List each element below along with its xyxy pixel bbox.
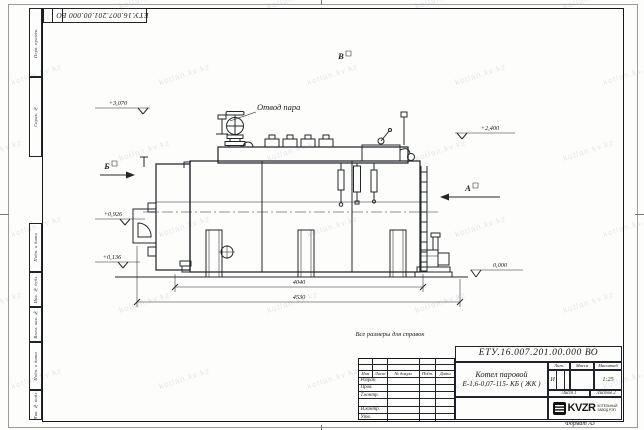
view-label-v: В bbox=[337, 51, 351, 61]
title-block: Изм Лист № докум. Подп. Дата Разраб. Про… bbox=[358, 346, 622, 420]
kvzr-logo-icon bbox=[553, 402, 566, 415]
scale-value: 1:25 bbox=[594, 370, 622, 390]
dim-4040-value: 4040 bbox=[293, 279, 306, 286]
sheet-number: Лист 1 bbox=[548, 390, 590, 397]
header-lit: Лит. bbox=[548, 362, 570, 370]
elevation-mark-2400: +2,400 bbox=[455, 125, 515, 139]
empty-cell bbox=[455, 397, 548, 420]
lit-value-cell: И bbox=[548, 370, 570, 390]
row-tkontr: Т.контр. bbox=[359, 392, 388, 398]
format-label: Формат А3 bbox=[540, 421, 620, 427]
manhole bbox=[219, 245, 235, 259]
header-masshtab: Масштаб bbox=[594, 362, 622, 370]
svg-text:Отвод пара: Отвод пара bbox=[257, 102, 300, 112]
front-fittings bbox=[140, 157, 191, 272]
product-name-line1: Котел паровой bbox=[475, 371, 527, 380]
svg-text:Б: Б bbox=[103, 161, 110, 171]
col-data: Дата bbox=[436, 371, 454, 377]
product-name: Котел паровой Е-1,6-0,07-115- КБ ( ЖК ) bbox=[455, 362, 548, 397]
title-block-signatures: Изм Лист № докум. Подп. Дата Разраб. Про… bbox=[358, 358, 455, 420]
drawing-sheet: kotlan.kv.kzkotlan.kv.kzkotlan.kv.kzkotl… bbox=[0, 0, 644, 430]
control-box bbox=[362, 112, 415, 161]
col-doc: № докум. bbox=[388, 371, 419, 377]
organization-cell: KVZR КОТЕЛЬНЫЙ ЗАВОД РЭП bbox=[548, 397, 622, 420]
row-utv: Утв. bbox=[359, 414, 388, 421]
col-podp: Подп. bbox=[420, 371, 437, 377]
sheets-total: Листов 2 bbox=[590, 390, 622, 397]
col-list: Лист bbox=[373, 371, 389, 377]
lit-value: И bbox=[549, 377, 556, 383]
burner bbox=[133, 209, 156, 243]
top-hatches bbox=[265, 135, 333, 147]
svg-text:+0,926: +0,926 bbox=[104, 211, 123, 218]
product-name-line2: Е-1,6-0,07-115- КБ ( ЖК ) bbox=[462, 381, 540, 389]
reference-note: Все размеры для справок bbox=[330, 331, 450, 338]
org-name-lines: КОТЕЛЬНЫЙ ЗАВОД РЭП bbox=[597, 405, 617, 413]
svg-text:+2,400: +2,400 bbox=[481, 125, 500, 132]
svg-text:+0,136: +0,136 bbox=[103, 254, 122, 261]
view-arrow-b: Б bbox=[100, 161, 135, 179]
row-razrab: Разраб. bbox=[359, 378, 388, 384]
support-legs bbox=[206, 230, 406, 277]
svg-text:+3,070: +3,070 bbox=[109, 100, 128, 107]
water-level-gauges bbox=[338, 163, 377, 206]
view-arrow-a: А bbox=[440, 183, 500, 201]
svg-text:А: А bbox=[464, 183, 471, 193]
svg-text:В: В bbox=[337, 51, 344, 61]
elevation-mark-3070: +3,070 bbox=[95, 100, 150, 114]
row-nkontr: Н.контр. bbox=[359, 407, 388, 413]
safety-valve-assembly bbox=[216, 112, 253, 148]
massa-value-cell bbox=[570, 370, 594, 390]
header-massa: Масса bbox=[570, 362, 594, 370]
kvzr-logo-text: KVZR bbox=[568, 403, 596, 415]
elevation-mark-0136: +0,136 bbox=[95, 254, 140, 268]
dim-4530-value: 4530 bbox=[293, 294, 306, 301]
document-number: ЕТУ.16.007.201.00.000 ВО bbox=[455, 346, 622, 362]
svg-text:0,000: 0,000 bbox=[493, 262, 508, 269]
boiler-body bbox=[143, 161, 438, 272]
col-izm: Изм bbox=[359, 371, 373, 377]
row-prov: Пров. bbox=[359, 385, 388, 391]
elevation-mark-0000: 0,000 bbox=[470, 262, 523, 277]
